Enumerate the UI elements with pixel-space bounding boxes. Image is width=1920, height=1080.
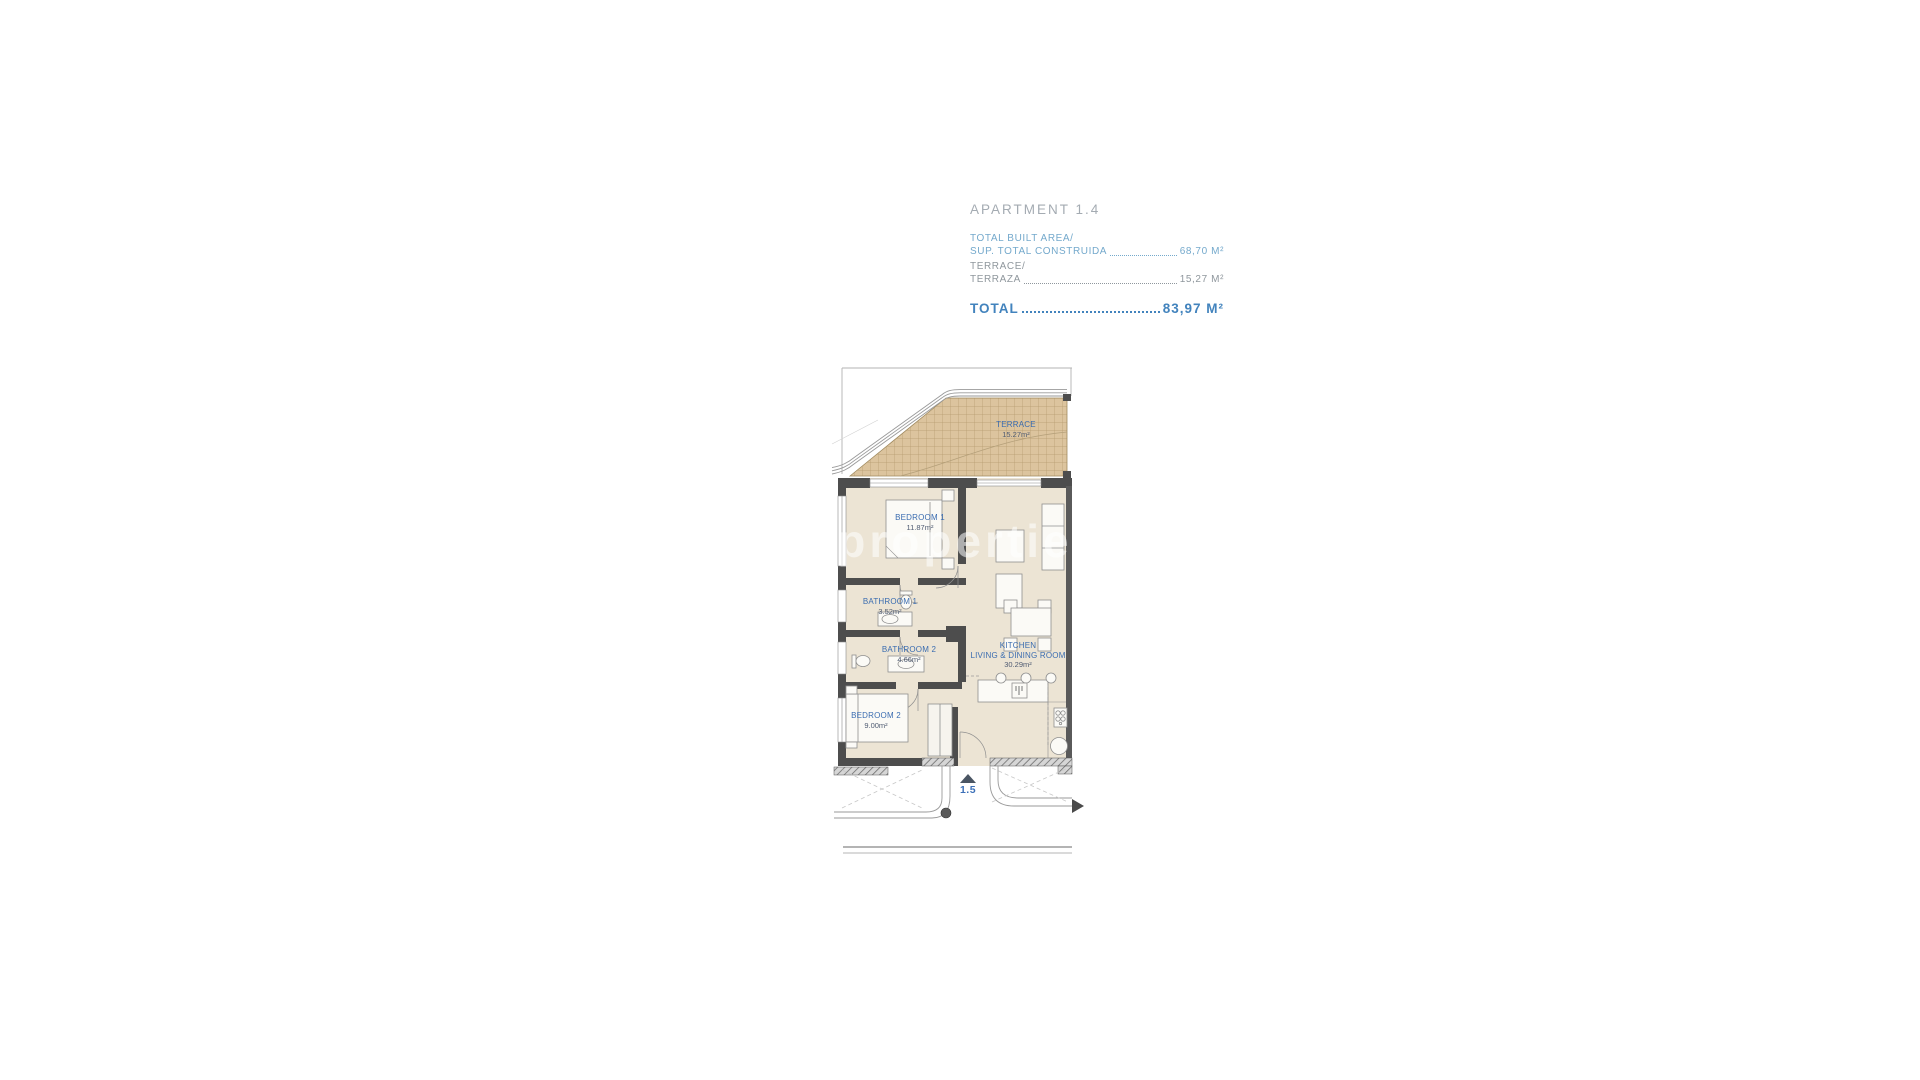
apartment-title: APARTMENT 1.4	[970, 202, 1224, 217]
built-area-label-en: TOTAL BUILT AREA/	[970, 233, 1224, 246]
room-label-kitchen-living: KITCHEN LIVING & DINING ROOM 30.29m²	[966, 641, 1070, 670]
terrace-area-leader	[1024, 283, 1177, 284]
bottom-separator-lines	[843, 847, 1072, 853]
built-area-label-es: SUP. TOTAL CONSTRUIDA	[970, 246, 1107, 259]
total-row: TOTAL 83,97 M²	[970, 301, 1224, 316]
built-area-leader	[1110, 255, 1177, 256]
entrance-marker: 1.5	[950, 774, 986, 796]
terrace-area-row: TERRACE/ TERRAZA 15,27 M²	[970, 261, 1224, 286]
floor-plan: TERRACE 15.27m² BEDROOM 1 11.87m² BATHRO…	[830, 350, 1090, 870]
header-block: APARTMENT 1.4 TOTAL BUILT AREA/ SUP. TOT…	[970, 202, 1224, 316]
built-area-value: 68,70 M²	[1180, 246, 1224, 259]
room-label-bedroom-2: BEDROOM 2 9.00m²	[840, 711, 912, 730]
total-leader	[1022, 311, 1160, 313]
terrace-area-value: 15,27 M²	[1180, 274, 1224, 287]
room-label-bedroom-1: BEDROOM 1 11.87m²	[884, 513, 956, 532]
room-label-bathroom-1: BATHROOM 1 3.52m²	[854, 597, 926, 616]
entrance-number: 1.5	[950, 784, 986, 796]
terrace-area-label-es: TERRAZA	[970, 274, 1021, 287]
entrance-arrow-icon	[960, 774, 976, 783]
total-value: 83,97 M²	[1163, 301, 1224, 316]
room-label-bathroom-2: BATHROOM 2 4.66m²	[873, 645, 945, 664]
path-node-marker	[941, 808, 951, 818]
total-label: TOTAL	[970, 301, 1019, 316]
direction-arrow-icon	[1072, 799, 1084, 813]
room-label-terrace: TERRACE 15.27m²	[980, 420, 1052, 439]
page-root: APARTMENT 1.4 TOTAL BUILT AREA/ SUP. TOT…	[0, 0, 1920, 1080]
terrace-area-label-en: TERRACE/	[970, 261, 1224, 274]
built-area-row: TOTAL BUILT AREA/ SUP. TOTAL CONSTRUIDA …	[970, 233, 1224, 258]
